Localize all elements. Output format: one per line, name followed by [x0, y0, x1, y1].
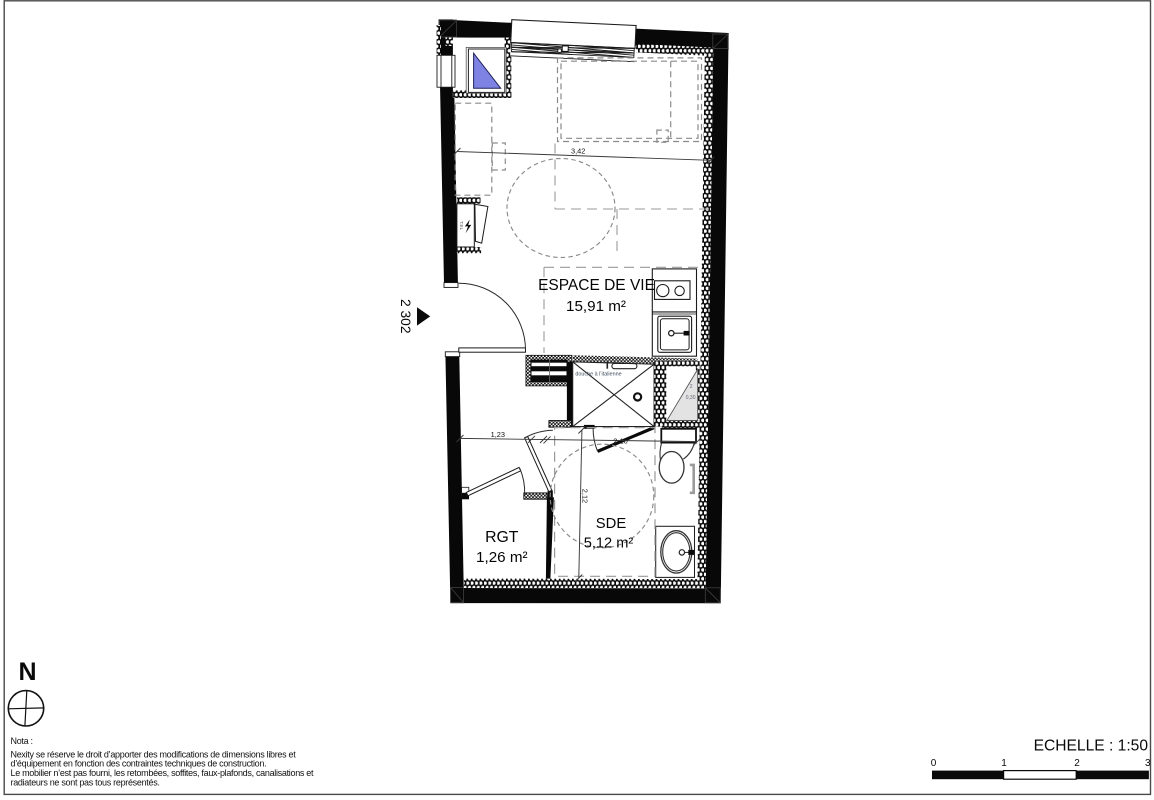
svg-text:1,26 m²: 1,26 m²: [476, 549, 528, 566]
svg-text:2: 2: [1074, 758, 1080, 769]
svg-text:RGT: RGT: [485, 529, 519, 546]
svg-text:15,91 m²: 15,91 m²: [566, 298, 626, 315]
svg-text:ESPACE DE VIE: ESPACE DE VIE: [538, 277, 655, 294]
svg-text:Nota :: Nota :: [11, 736, 33, 746]
svg-text:1,23: 1,23: [491, 430, 505, 439]
svg-text:douche à l’italienne: douche à l’italienne: [575, 372, 621, 378]
svg-text:ECHELLE : 1:50: ECHELLE : 1:50: [1034, 738, 1149, 755]
svg-text:T.EL: T.EL: [459, 221, 464, 231]
svg-text:0: 0: [931, 758, 937, 769]
svg-text:5,12 m²: 5,12 m²: [584, 536, 634, 552]
svg-text:2,12: 2,12: [580, 489, 589, 503]
svg-text:SDE: SDE: [596, 516, 627, 532]
svg-text:1: 1: [1001, 758, 1007, 769]
svg-text:2,10: 2,10: [613, 436, 627, 445]
svg-text:0,30: 0,30: [686, 395, 696, 401]
svg-text:2 302: 2 302: [398, 299, 413, 334]
svg-text:3,42: 3,42: [571, 146, 585, 155]
svg-text:N: N: [19, 658, 37, 686]
svg-text:2: 2: [690, 384, 693, 390]
svg-text:3: 3: [1145, 758, 1151, 769]
svg-text:radiateurs ne sont pas tous re: radiateurs ne sont pas tous représentés.: [11, 777, 160, 787]
